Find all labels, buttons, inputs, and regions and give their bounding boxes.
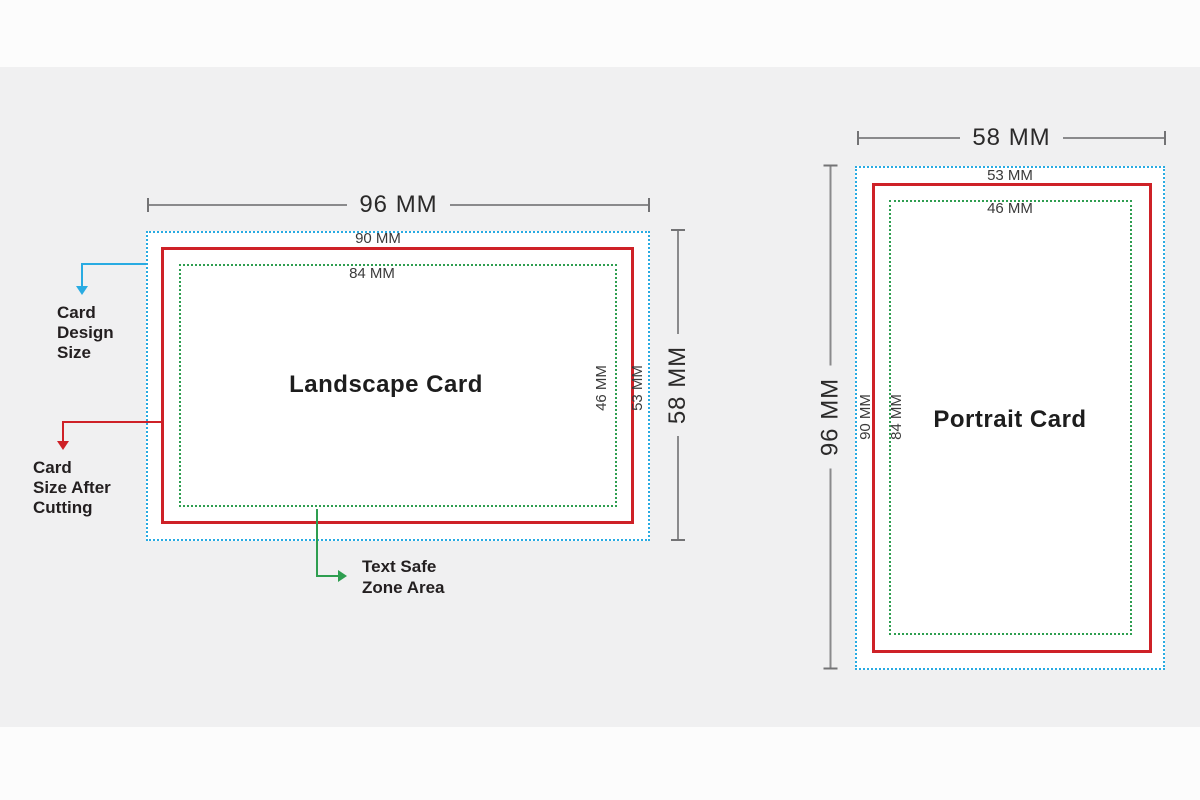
dimension-line <box>830 166 832 365</box>
portrait-cut-width-label: 53 MM <box>980 168 1040 184</box>
cut-size-connector-line <box>62 421 64 441</box>
cut-size-arrow-icon <box>57 441 69 450</box>
dimension-line <box>859 137 960 139</box>
portrait-safe-width-label: 46 MM <box>980 201 1040 217</box>
landscape-cut-width-label: 90 MM <box>348 231 408 247</box>
dimension-line <box>830 468 832 667</box>
dimension-line <box>450 204 648 206</box>
landscape-card-title: Landscape Card <box>236 371 536 399</box>
portrait-card-title: Portrait Card <box>860 406 1160 434</box>
landscape-total-width-label: 96 MM <box>359 197 437 213</box>
design-size-connector-line <box>81 263 147 265</box>
design-size-legend-label: Card Design Size <box>57 303 114 363</box>
dimension-tick <box>1164 131 1166 145</box>
portrait-total-height-dimension: 96 MM <box>823 165 839 670</box>
safe-zone-arrow-icon <box>338 570 347 582</box>
dimension-tick <box>824 668 838 670</box>
safe-zone-connector-line <box>316 575 338 577</box>
card-size-diagram: 96 MM 58 MM 90 MM 84 MM 46 MM 53 MM Land… <box>0 0 1200 800</box>
design-size-connector-line <box>81 263 83 286</box>
safe-zone-connector-line <box>316 509 318 577</box>
dimension-tick <box>824 164 838 166</box>
dimension-tick <box>671 229 685 231</box>
dimension-line <box>677 231 679 334</box>
dimension-line <box>677 436 679 539</box>
cut-size-connector-line <box>63 421 163 423</box>
dimension-tick <box>671 539 685 541</box>
landscape-cut-height-label: 53 MM <box>630 358 646 418</box>
cut-size-legend-label: Card Size After Cutting <box>33 458 111 518</box>
landscape-total-width-dimension: 96 MM <box>147 197 650 213</box>
design-size-arrow-icon <box>76 286 88 295</box>
dimension-line <box>1063 137 1164 139</box>
portrait-total-height-label: 96 MM <box>823 378 839 456</box>
dimension-line <box>149 204 347 206</box>
landscape-total-height-label: 58 MM <box>670 346 686 424</box>
portrait-total-width-dimension: 58 MM <box>857 130 1166 146</box>
landscape-safe-width-label: 84 MM <box>342 266 402 282</box>
landscape-total-height-dimension: 58 MM <box>670 229 686 541</box>
dimension-tick <box>648 198 650 212</box>
portrait-total-width-label: 58 MM <box>972 130 1050 146</box>
safe-zone-legend-label: Text Safe Zone Area <box>362 556 445 598</box>
landscape-safe-height-label: 46 MM <box>594 358 610 418</box>
